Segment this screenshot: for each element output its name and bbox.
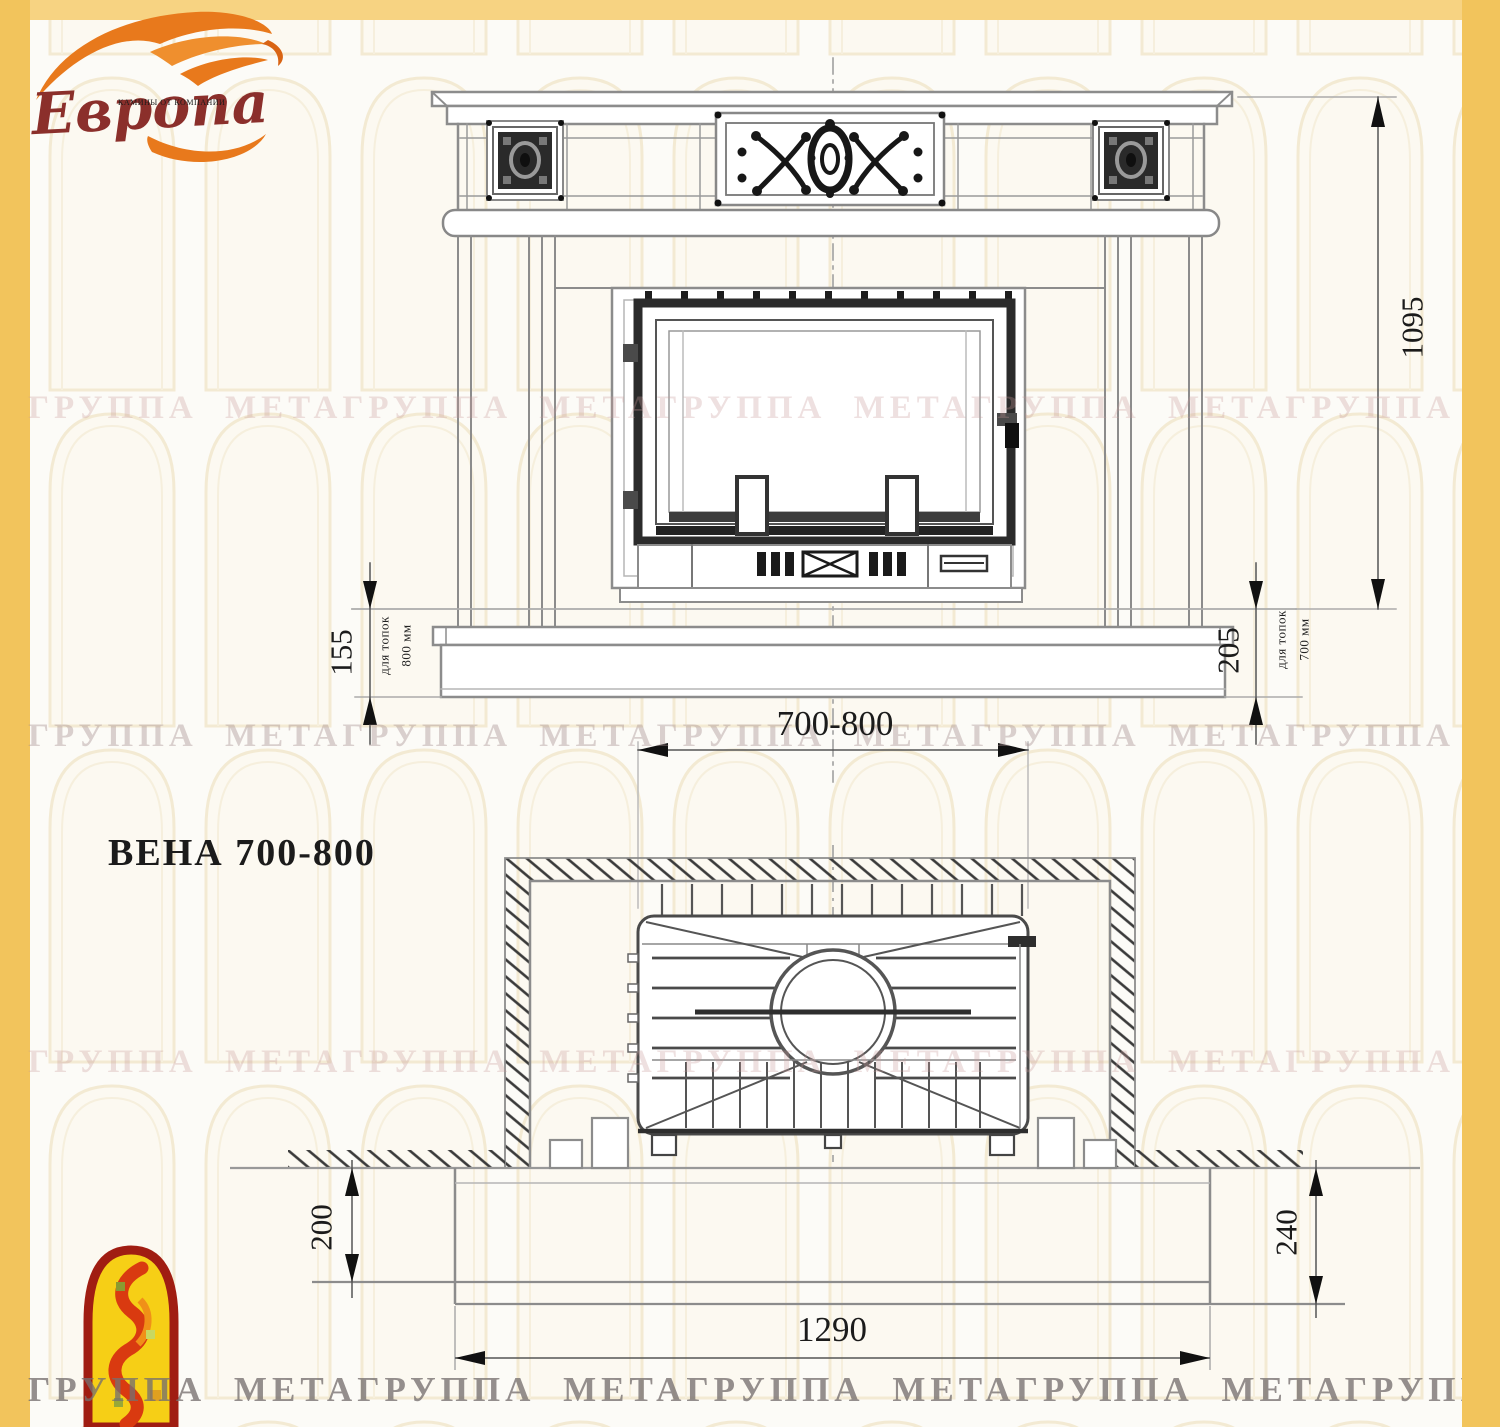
hinge-icon bbox=[623, 491, 638, 509]
stained-glass-logo-icon bbox=[88, 1250, 174, 1427]
hearth-base-front bbox=[433, 627, 1233, 697]
rosette-medallion-left bbox=[486, 120, 564, 201]
technical-drawing-canvas bbox=[0, 0, 1500, 1427]
hinge-icon bbox=[623, 344, 638, 362]
scanned-fireplace-drawing-page: ГРУППА МЕТАГРУППА МЕТАГРУППА МЕТАГРУППА … bbox=[0, 0, 1500, 1427]
firebox-insert-front bbox=[612, 288, 1025, 602]
rosette-medallion-right bbox=[1092, 120, 1170, 201]
ornament-panel bbox=[715, 112, 946, 207]
